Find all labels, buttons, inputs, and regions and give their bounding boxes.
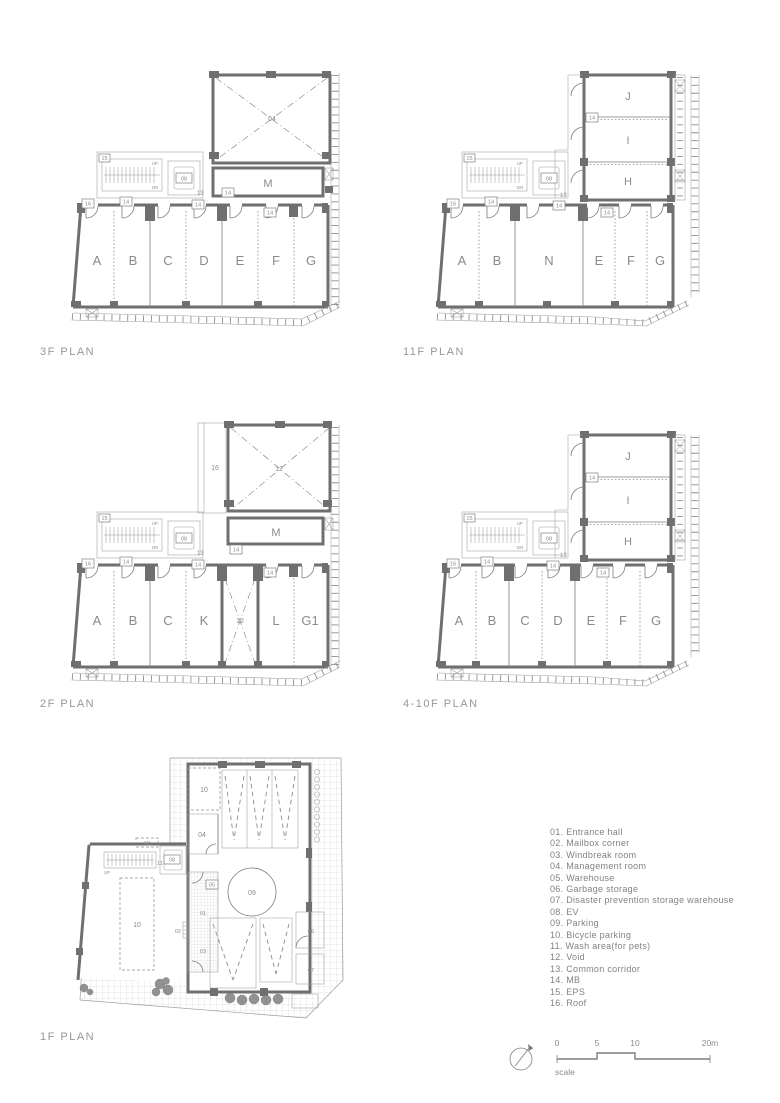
room-label: B (129, 613, 138, 628)
scale-and-north: 0 5 10 20m scale (495, 1030, 765, 1090)
eps-label: 15 (101, 516, 107, 522)
entrance-label: 01 (200, 911, 206, 917)
garbage-label: 06 (308, 929, 314, 935)
legend-item: 09. Parking (550, 918, 778, 929)
room-label: F (272, 253, 280, 268)
room-label: J (625, 451, 631, 463)
management-label: 04 (198, 832, 206, 839)
room-row: 14 14 14 16 A B N E F G (436, 197, 673, 307)
mailbox-label: 02 (175, 929, 181, 935)
mb-label: 14 (484, 560, 490, 566)
ev-label: 08 (181, 537, 187, 543)
rooms-jih: J I H 14 (555, 431, 685, 562)
corridor-label: 13 (197, 551, 204, 557)
floor-plan-2f: 16 12 M 15 UP DN 08 13 (70, 415, 340, 700)
room-label: A (93, 253, 102, 268)
room-label: B (129, 253, 138, 268)
room-label: A (93, 613, 102, 628)
stairs-up-label: UP (517, 161, 523, 166)
plan-title-1f: 1F PLAN (40, 1031, 95, 1043)
room-label: H (624, 536, 632, 548)
legend-item: 06. Garbage storage (550, 884, 778, 895)
legend-item: 15. EPS (550, 987, 778, 998)
legend-item: 03. Windbreak room (550, 850, 778, 861)
stairs-dn-label: DN (152, 185, 158, 190)
floor-plan-1f: 09 06 07 10 04 UP 10 11 08 (60, 752, 345, 1022)
room-label: G (306, 253, 316, 268)
roof-block: 04 (209, 71, 332, 165)
room-label: J (625, 91, 631, 103)
mb-label: 14 (225, 191, 231, 197)
floor-plan-3f: 04 M 15 UP DN 08 13 (70, 55, 340, 345)
legend-item: 07. Disaster prevention storage warehous… (550, 895, 778, 906)
eps-label: 15 (466, 516, 472, 522)
stairs-dn-label: DN (152, 545, 158, 550)
mb-label: 14 (604, 211, 610, 217)
scale-tick-20m: 20m (702, 1038, 719, 1048)
parking-label: 09 (248, 890, 256, 897)
room-label: B (488, 613, 497, 628)
floor-plan-4-10f: J I H 14 15 UP DN 08 13 (435, 415, 705, 700)
legend-item: 02. Mailbox corner (550, 838, 778, 849)
mb-label: 14 (589, 116, 595, 122)
scale-bar: 0 5 10 20m scale (555, 1038, 719, 1077)
room-m-label: M (271, 527, 280, 539)
room-row: 14 14 14 14 16 A B C K 12 L G1 (71, 545, 328, 667)
elevator: 08 (168, 521, 200, 555)
elevator: 08 (533, 521, 565, 555)
mb-label: 14 (233, 548, 239, 554)
plan-title-4-10f: 4-10F PLAN (403, 698, 479, 710)
mb-label: 14 (267, 571, 273, 577)
legend-item: 01. Entrance hall (550, 827, 778, 838)
stairs-dn-label: DN (517, 545, 523, 550)
stairs-up-label: UP (104, 870, 110, 875)
scale-tick-5: 5 (595, 1038, 600, 1048)
legend-item: 14. MB (550, 975, 778, 986)
roof-strip-label: 16 (211, 465, 219, 472)
room-label: H (624, 176, 632, 188)
corridor-label: 13 (560, 553, 567, 559)
void-block: 12 (224, 421, 332, 513)
mb-label: 14 (589, 476, 595, 482)
corridor-label: 13 (197, 191, 204, 197)
bicycle-left-label: 10 (133, 922, 141, 929)
mb-label: 14 (550, 564, 556, 570)
stairs-up-label: UP (517, 521, 523, 526)
room-label: B (493, 253, 502, 268)
room-label: A (458, 253, 467, 268)
void-row-label: 12 (236, 618, 244, 625)
room-label: C (520, 613, 529, 628)
ev-label: 08 (181, 177, 187, 183)
room-row: 14 14 14 14 16 A B C D E F G (71, 188, 328, 307)
room-label: C (163, 613, 172, 628)
mb-label: 14 (600, 571, 606, 577)
windbreak-label: 03 (200, 949, 206, 955)
plan-title-11f: 11F PLAN (403, 346, 465, 358)
room-label: I (626, 495, 629, 507)
room-label: C (163, 253, 172, 268)
scale-tick-0: 0 (555, 1038, 560, 1048)
corner-roof-label: 16 (450, 202, 456, 208)
stairs-up-label: UP (152, 161, 158, 166)
corner-roof-label: 16 (450, 562, 456, 568)
scale-tick-10: 10 (630, 1038, 640, 1048)
corner-roof-label: 16 (85, 562, 91, 568)
room-label: E (236, 253, 245, 268)
floor-plan-11f: J I H 14 15 UP DN 08 13 (435, 55, 705, 345)
legend-item: 04. Management room (550, 861, 778, 872)
room-label: D (199, 253, 208, 268)
legend-item: 10. Bicycle parking (550, 930, 778, 941)
room-label: E (587, 613, 596, 628)
scale-caption: scale (555, 1067, 575, 1077)
legend-item: 16. Roof (550, 998, 778, 1009)
roof-strip: 16 (198, 423, 226, 513)
room-label: F (619, 613, 627, 628)
room-label: G1 (301, 613, 318, 628)
bicycle-small-label: 10 (144, 841, 150, 847)
left-yard (76, 844, 186, 982)
mb-label: 14 (123, 560, 129, 566)
mb-label: 14 (488, 200, 494, 206)
legend-item: 05. Warehouse (550, 873, 778, 884)
room-label: N (544, 253, 553, 268)
boundary-right-strip (691, 435, 699, 657)
room-label: F (627, 253, 635, 268)
mb-label: 14 (195, 563, 201, 569)
corner-roof-label: 16 (85, 202, 91, 208)
room-label: K (200, 613, 209, 628)
void-number-label: 12 (275, 466, 283, 473)
mb-label: 14 (267, 211, 273, 217)
eps-label: 15 (466, 156, 472, 162)
plan-title-2f: 2F PLAN (40, 698, 95, 710)
room-label: D (553, 613, 562, 628)
bicycle-top-label: 10 (200, 787, 208, 794)
room-label: A (455, 613, 464, 628)
room-label: G (655, 253, 665, 268)
eps-label: 15 (101, 156, 107, 162)
stairs-dn-label: DN (517, 185, 523, 190)
boundary-right-strip (691, 75, 699, 297)
legend-item: 12. Void (550, 952, 778, 963)
room-row: 14 14 14 16 A B C D E F G (436, 557, 673, 667)
disaster-label: 07 (308, 968, 314, 974)
room-label: L (272, 613, 279, 628)
ev-label: 08 (169, 858, 175, 864)
legend-item: 13. Common corridor (550, 964, 778, 975)
elevator: 08 (533, 161, 565, 195)
corridor-label: 13 (560, 193, 567, 199)
north-arrow-icon (510, 1044, 533, 1070)
ev-label: 08 (546, 177, 552, 183)
balcony-right-strip (331, 425, 339, 671)
plan-title-3f: 3F PLAN (40, 346, 95, 358)
legend-item: 11. Wash area(for pets) (550, 941, 778, 952)
room-label: E (595, 253, 604, 268)
legend-item: 08. EV (550, 907, 778, 918)
rooms-jih: J I H 14 (555, 71, 685, 202)
mb-label: 14 (195, 203, 201, 209)
room-m-label: M (263, 178, 272, 190)
warehouse-label: 05 (209, 883, 215, 889)
room-m: M (226, 516, 333, 546)
mb-label: 14 (123, 200, 129, 206)
room-label: G (651, 613, 661, 628)
ev-label: 08 (546, 537, 552, 543)
roof-number-label: 04 (268, 116, 276, 123)
mb-label: 14 (556, 204, 562, 210)
stairs-up-label: UP (152, 521, 158, 526)
room-label: I (626, 135, 629, 147)
elevator: 08 (168, 161, 200, 195)
legend: 01. Entrance hall 02. Mailbox corner 03.… (550, 827, 778, 1010)
